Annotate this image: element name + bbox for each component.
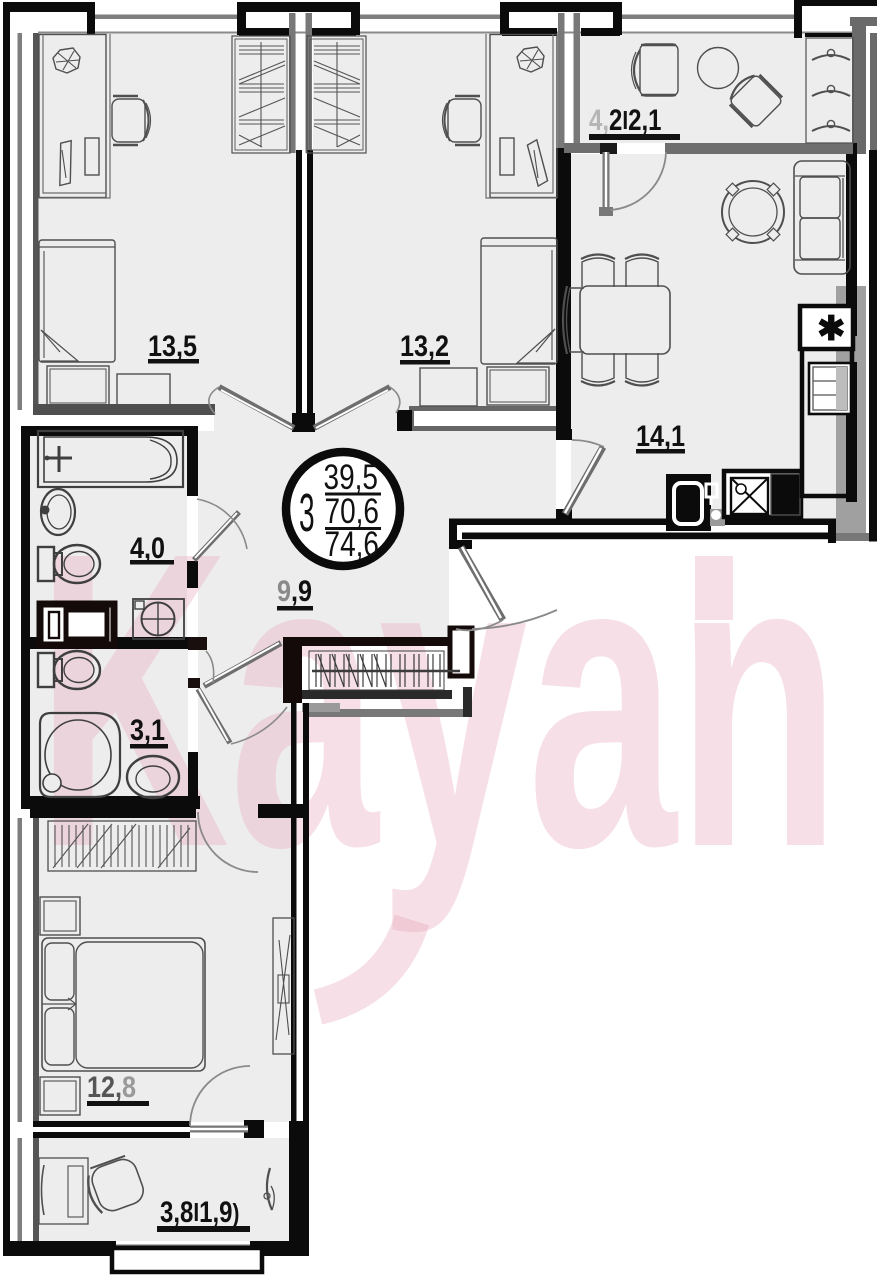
svg-text:13,5: 13,5 bbox=[148, 329, 197, 363]
svg-text:3,8I1,9): 3,8I1,9) bbox=[160, 1194, 239, 1228]
svg-text:✱: ✱ bbox=[817, 310, 846, 348]
svg-text:9,9: 9,9 bbox=[277, 574, 312, 608]
svg-text:12,8: 12,8 bbox=[87, 1070, 136, 1104]
svg-text:14,1: 14,1 bbox=[636, 419, 685, 453]
svg-text:3: 3 bbox=[299, 483, 315, 543]
svg-text:13,2: 13,2 bbox=[400, 329, 449, 363]
svg-text:74,6: 74,6 bbox=[325, 524, 379, 564]
svg-text:3,1: 3,1 bbox=[130, 713, 165, 747]
svg-text:4,2I2,1: 4,2I2,1 bbox=[589, 102, 662, 136]
svg-text:4,0: 4,0 bbox=[130, 531, 165, 565]
